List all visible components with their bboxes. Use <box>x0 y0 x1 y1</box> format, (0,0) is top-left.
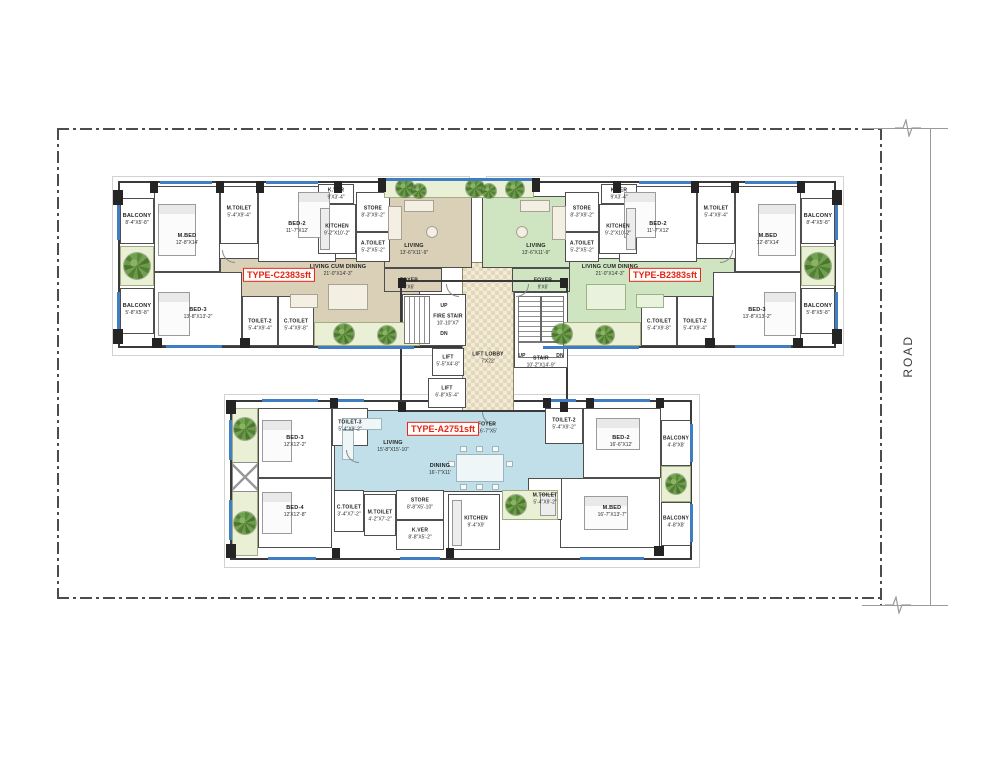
room-label-bed3-c: BED-313'-8"X13'-2" <box>184 307 213 321</box>
badge-type-a: TYPE-A2751sft <box>407 422 479 436</box>
room-label-living-dining-c: LIVING CUM DINING21'-0"X14'-3" <box>310 264 367 278</box>
room-label-bed3-a: BED-312'X12'-2" <box>284 435 307 449</box>
label-dn-fire-stair: DN <box>440 331 448 338</box>
furniture-table <box>426 226 438 238</box>
room-label-mbed-b: M.BED12'-8"X14' <box>757 233 780 247</box>
room-label-kver-c: K.VER9'X3'-4" <box>327 188 344 201</box>
room-label-fire-stair: FIRE STAIR10'-10"X7' <box>433 314 462 327</box>
label-up-fire-stair: UP <box>440 303 447 310</box>
road-edge-line <box>930 128 931 605</box>
wall-pier <box>150 181 158 193</box>
window-segment <box>594 399 650 402</box>
room-label-living-c: LIVING13'-6"X11'-9" <box>400 243 428 257</box>
furniture-sofa <box>520 200 550 212</box>
window-segment <box>117 202 120 240</box>
room-label-ctoilet-b: C.TOILET5'-4"X9'-8" <box>647 319 671 332</box>
window-segment <box>336 399 364 402</box>
window-segment <box>262 399 318 402</box>
wall-pier <box>226 400 236 414</box>
room-label-balcony2-c: BALCONY5'-8"X5'-8" <box>123 303 152 317</box>
window-segment <box>318 346 414 349</box>
window-segment <box>580 557 644 560</box>
room-label-bed2-c: BED-211'-7"X12' <box>286 221 308 235</box>
room-label-mtoilet-bottom-a: M.TOILET4'-2"X7'-2" <box>368 510 393 523</box>
tree-icon <box>234 512 256 534</box>
wall-pier <box>656 398 664 408</box>
room-label-mtoilet-right-a: M.TOILET5'-4"X9'-2" <box>533 493 558 506</box>
room-label-lift-lobby: LIFT LOBBY7'X22' <box>472 352 503 365</box>
room-label-ctoilet-a: C.TOILET3'-4"X7'-2" <box>337 505 361 518</box>
room-label-bed4-a: BED-412'X12'-8" <box>284 505 307 519</box>
shaft-hatch-a <box>232 462 258 492</box>
window-segment <box>268 557 316 560</box>
tree-icon <box>552 324 572 344</box>
furniture-sofa <box>552 206 566 240</box>
tree-icon <box>506 495 526 515</box>
room-label-kitchen-c: KITCHEN9'-2"X10'-2" <box>324 224 350 237</box>
wall-pier <box>398 402 406 412</box>
room-label-ctoilet-c: C.TOILET5'-4"X9'-8" <box>284 319 308 332</box>
tree-icon <box>234 418 256 440</box>
room-label-toilet3-a: TOILET-35'-4"X9'-2" <box>338 420 361 433</box>
room-label-bed2-a: BED-216'-6"X12' <box>610 435 633 449</box>
wall-pier <box>216 181 224 193</box>
wall-pier <box>560 278 568 288</box>
site-boundary-top <box>57 128 880 130</box>
room-label-balcony1-b: BALCONY8'-4"X5'-8" <box>804 213 833 227</box>
furniture-sofa <box>404 200 434 212</box>
window-segment <box>229 500 232 540</box>
window-segment <box>835 202 838 240</box>
window-segment <box>160 181 212 184</box>
window-segment <box>735 345 791 348</box>
tree-icon <box>805 253 831 279</box>
badge-type-c: TYPE-C2383sft <box>243 268 315 282</box>
room-label-bed2-b: BED-211'-7"X12' <box>647 221 669 235</box>
wall-pier <box>113 190 123 205</box>
furniture-sofa <box>290 294 318 308</box>
label-dn-stair: DN <box>556 353 564 360</box>
room-label-lift2: LIFT6'-8"X5'-4" <box>435 386 458 399</box>
wall-pier <box>330 398 338 408</box>
window-segment <box>266 181 318 184</box>
break-mark-top <box>895 119 921 137</box>
wall-pier <box>113 329 123 344</box>
window-segment <box>229 420 232 460</box>
stair-divider <box>540 296 542 342</box>
wall-pier <box>832 329 842 344</box>
tree-icon <box>334 324 354 344</box>
window-segment <box>690 504 693 542</box>
wall-pier <box>378 178 386 192</box>
wall-pier <box>446 548 454 558</box>
break-mark-bottom <box>885 596 911 614</box>
room-label-mbed-a: M.BED16'-7"X13'-7" <box>598 505 627 519</box>
room-label-store-a: STORE8'-8"X5'-10" <box>407 498 433 511</box>
room-label-foyer-b: FOYER9'X6' <box>534 278 552 291</box>
room-label-lift1: LIFT5'-5"X4'-8" <box>436 355 459 368</box>
room-label-dining-a: DINING16'-7"X11' <box>429 463 451 477</box>
room-label-balcony1-a: BALCONY4'-8"X8' <box>663 436 689 449</box>
fire-stair-treads <box>404 296 430 344</box>
furniture-chair <box>476 446 483 452</box>
room-label-mtoilet-c: M.TOILET5'-4"X9'-4" <box>227 206 252 219</box>
room-label-kver-b: K.VER9'X3'-4" <box>610 188 627 201</box>
furniture-table <box>516 226 528 238</box>
wall-pier <box>543 398 551 408</box>
badge-type-b: TYPE-B2383sft <box>629 268 701 282</box>
furniture-chair <box>492 446 499 452</box>
site-boundary-left <box>57 128 59 597</box>
room-label-toilet2-c: TOILET-25'-4"X9'-4" <box>248 319 271 332</box>
window-segment <box>400 557 440 560</box>
furniture-sofa <box>636 294 664 308</box>
furniture-dining-table <box>328 284 368 310</box>
room-label-kver-a: K.VER8'-8"X5'-2" <box>408 528 431 541</box>
furniture-dining-table <box>456 454 504 482</box>
tree-icon <box>506 180 524 198</box>
room-label-atoilet-c: A.TOILET5'-2"X5'-2" <box>361 241 385 254</box>
wall-pier <box>560 402 568 412</box>
furniture-bed <box>758 204 796 256</box>
room-label-mtoilet-b: M.TOILET5'-4"X9'-4" <box>704 206 729 219</box>
room-label-living-a: LIVING15'-8"X15'-10" <box>377 440 409 454</box>
wall-pier <box>793 338 803 348</box>
site-boundary-right <box>880 128 882 605</box>
furniture-sofa <box>388 206 402 240</box>
room-label-kitchen-b: KITCHEN9'-2"X10'-2" <box>605 224 631 237</box>
furniture-kitchen-counter <box>452 500 462 546</box>
wall-pier <box>240 338 250 348</box>
furniture-chair <box>492 484 499 490</box>
wall-pier <box>532 178 540 192</box>
furniture-chair <box>506 461 513 467</box>
wall-pier <box>586 398 594 408</box>
room-label-kitchen-a: KITCHEN9'-4"X9' <box>464 516 488 529</box>
tree-icon <box>666 474 686 494</box>
floor-plan-canvas: ROAD <box>0 0 1000 771</box>
wall-pier <box>731 181 739 193</box>
room-label-atoilet-b: A.TOILET5'-2"X5'-2" <box>570 241 594 254</box>
window-segment <box>117 292 120 330</box>
wall-pier <box>691 181 699 193</box>
wall-pier <box>226 544 236 558</box>
window-segment <box>745 181 797 184</box>
room-label-stair: STAIR10'-2"X14'-9" <box>527 356 556 369</box>
window-segment <box>639 181 691 184</box>
room-label-toilet2-a: TOILET-25'-4"X9'-2" <box>552 418 575 431</box>
tree-icon <box>482 184 496 198</box>
window-segment <box>543 346 639 349</box>
room-label-balcony1-c: BALCONY8'-4"X5'-8" <box>123 213 152 227</box>
room-label-living-b: LIVING13'-6"X11'-9" <box>522 243 550 257</box>
tree-icon <box>378 326 396 344</box>
wall-pier <box>332 548 340 558</box>
room-label-foyer-a: FOYER16'-7"X5' <box>477 422 497 435</box>
window-segment <box>690 424 693 462</box>
room-label-balcony2-b: BALCONY5'-8"X5'-8" <box>804 303 833 317</box>
window-segment <box>386 178 532 181</box>
room-label-store-c: STORE8'-3"X9'-2" <box>361 206 384 219</box>
furniture-chair <box>476 484 483 490</box>
tree-icon <box>412 184 426 198</box>
window-segment <box>166 345 222 348</box>
tree-icon <box>124 253 150 279</box>
wall-pier <box>152 338 162 348</box>
label-up-stair: UP <box>518 353 525 360</box>
wall-pier <box>797 181 805 193</box>
room-label-store-b: STORE8'-3"X9'-2" <box>570 206 593 219</box>
window-segment <box>835 292 838 330</box>
furniture-chair <box>460 446 467 452</box>
furniture-dining-table <box>586 284 626 310</box>
road-label: ROAD <box>901 335 915 378</box>
room-label-mbed-c: M.BED12'-8"X14' <box>176 233 199 247</box>
tree-icon <box>596 326 614 344</box>
wall-pier <box>705 338 715 348</box>
wall-pier <box>256 181 264 193</box>
room-label-balcony2-a: BALCONY4'-8"X8' <box>663 516 689 529</box>
room-label-toilet2-b: TOILET-25'-4"X9'-4" <box>683 319 706 332</box>
wall-pier <box>832 190 842 205</box>
room-label-foyer-c: FOYER9'X6' <box>400 278 418 291</box>
site-boundary-bottom <box>57 597 880 599</box>
room-label-bed3-b: BED-313'-8"X13'-2" <box>743 307 772 321</box>
furniture-bed <box>158 204 196 256</box>
wall-pier <box>654 546 664 556</box>
furniture-chair <box>460 484 467 490</box>
